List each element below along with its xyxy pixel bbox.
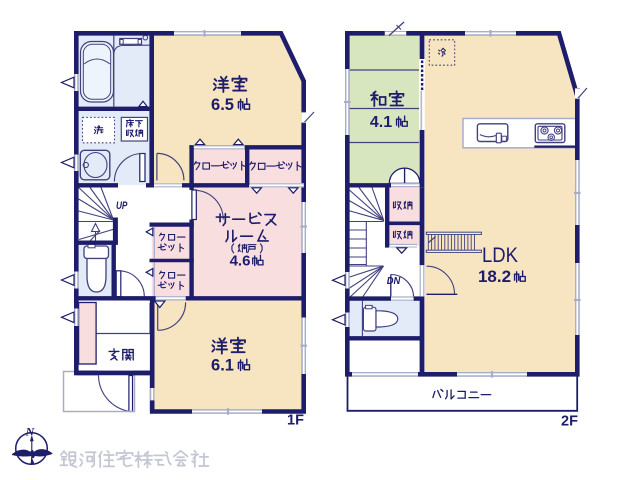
svg-text:4.1: 4.1: [370, 114, 392, 131]
svg-text:DN: DN: [387, 275, 401, 287]
svg-text:6.5: 6.5: [211, 96, 234, 114]
svg-text:4.6: 4.6: [230, 253, 251, 270]
svg-text:1F: 1F: [287, 413, 304, 429]
svg-text:LDK: LDK: [482, 244, 518, 267]
svg-text:UP: UP: [116, 200, 128, 212]
svg-text:18.2: 18.2: [478, 267, 511, 286]
svg-text:6.1: 6.1: [211, 357, 234, 375]
svg-text:N: N: [25, 425, 36, 439]
svg-text:2F: 2F: [561, 414, 578, 430]
